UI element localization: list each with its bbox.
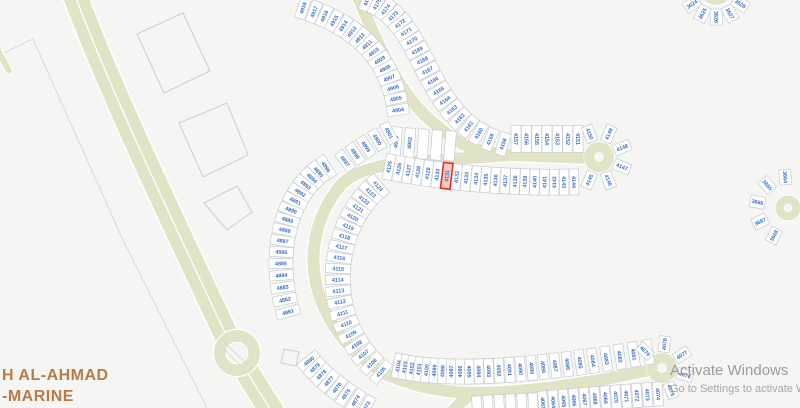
svg-text:4153: 4153 xyxy=(553,133,559,145)
svg-text:4094: 4094 xyxy=(475,365,481,377)
parcel-4063[interactable]: 4063 xyxy=(537,391,549,408)
svg-text:4115: 4115 xyxy=(332,266,344,273)
watermark-line2: Go to Settings to activate W xyxy=(670,383,800,395)
parcel-4067[interactable]: 4067 xyxy=(579,387,590,408)
svg-text:4066: 4066 xyxy=(570,394,577,406)
parcel-4089[interactable]: 4089 xyxy=(526,355,538,381)
parcel-4081[interactable]: 4081 xyxy=(627,341,640,367)
svg-text:4093: 4093 xyxy=(485,365,492,377)
parcel-4115[interactable]: 4115 xyxy=(325,263,351,274)
parcel-4152[interactable]: 4152 xyxy=(563,126,573,153)
parcel-4150[interactable]: 4150 xyxy=(581,124,598,144)
parcel-4095[interactable]: 4095 xyxy=(464,359,474,384)
parcel-3666[interactable]: 3666 xyxy=(749,195,766,210)
svg-text:4070: 4070 xyxy=(612,391,619,403)
parcel-layer: 4918491749164915491449134912491149104909… xyxy=(269,0,792,408)
parcel-blank xyxy=(471,396,482,408)
parcel-blank xyxy=(483,395,494,408)
road-label-line1: H AL-AHMAD xyxy=(2,365,109,386)
parcel-4084[interactable]: 4084 xyxy=(587,348,600,374)
parcel-4072[interactable]: 4072 xyxy=(631,383,642,408)
parcel-4146[interactable]: 4146 xyxy=(600,170,617,190)
parcel-blank xyxy=(430,130,443,161)
svg-text:4152: 4152 xyxy=(564,133,570,145)
parcel-4144[interactable]: 4144 xyxy=(569,169,579,195)
svg-text:4114: 4114 xyxy=(332,277,344,283)
parcel-4074[interactable]: 4074 xyxy=(652,382,663,407)
parcel-3665[interactable]: 3665 xyxy=(758,175,777,194)
road-casings xyxy=(0,0,800,408)
svg-text:4068: 4068 xyxy=(591,393,598,405)
svg-text:4136: 4136 xyxy=(493,174,500,186)
svg-text:4884: 4884 xyxy=(275,273,287,280)
svg-text:3664: 3664 xyxy=(781,171,788,183)
parcel-4154[interactable]: 4154 xyxy=(542,126,552,153)
svg-text:4078: 4078 xyxy=(662,338,669,351)
parcel-4136[interactable]: 4136 xyxy=(490,167,501,194)
vacant-parcel xyxy=(179,103,248,177)
svg-text:4155: 4155 xyxy=(533,133,539,145)
roundabout xyxy=(214,330,261,377)
road-label-line2: -MARINE xyxy=(2,386,109,407)
svg-text:4151: 4151 xyxy=(574,133,580,145)
parcel-4886[interactable]: 4886 xyxy=(269,246,294,257)
watermark-line1: Activate Windows xyxy=(670,362,800,379)
parcel-4156[interactable]: 4156 xyxy=(521,126,531,153)
parcel-4113[interactable]: 4113 xyxy=(325,285,351,297)
svg-text:4138: 4138 xyxy=(513,175,520,187)
parcel-4139[interactable]: 4139 xyxy=(520,169,530,195)
parcel-blank xyxy=(517,393,527,408)
parcel-4885[interactable]: 4885 xyxy=(269,258,293,268)
svg-text:4092: 4092 xyxy=(495,364,502,376)
parcel-4068[interactable]: 4068 xyxy=(589,386,600,408)
parcel-4070[interactable]: 4070 xyxy=(610,385,621,408)
parcel-4884[interactable]: 4884 xyxy=(269,269,294,281)
parcel-4064[interactable]: 4064 xyxy=(548,390,560,408)
vacant-parcel-small xyxy=(281,349,299,366)
parcel-4142[interactable]: 4142 xyxy=(549,169,559,195)
parcel-4069[interactable]: 4069 xyxy=(600,386,611,408)
parcel-4066[interactable]: 4066 xyxy=(568,388,579,408)
svg-text:4135: 4135 xyxy=(483,173,490,185)
parcel-3667[interactable]: 3667 xyxy=(751,213,770,230)
svg-text:4065: 4065 xyxy=(559,395,566,407)
parcel-4153[interactable]: 4153 xyxy=(552,126,562,153)
parcel-4138[interactable]: 4138 xyxy=(510,168,521,194)
parcel-4087[interactable]: 4087 xyxy=(549,353,561,379)
svg-text:4137: 4137 xyxy=(503,175,510,187)
svg-text:4142: 4142 xyxy=(552,176,558,188)
svg-text:4157: 4157 xyxy=(512,133,518,145)
svg-text:4071: 4071 xyxy=(622,390,629,402)
parcel-4131[interactable]: 4131 xyxy=(440,162,453,189)
svg-text:4902: 4902 xyxy=(407,137,414,149)
parcel-4093[interactable]: 4093 xyxy=(483,358,494,383)
svg-text:4096: 4096 xyxy=(458,366,464,378)
svg-text:4072: 4072 xyxy=(633,389,640,401)
parcel-3664[interactable]: 3664 xyxy=(779,169,792,185)
svg-text:4140: 4140 xyxy=(532,176,538,188)
parcel-blank xyxy=(494,394,505,408)
parcel-4096[interactable]: 4096 xyxy=(455,359,465,384)
road-label: H AL-AHMAD -MARINE xyxy=(2,365,109,407)
parcel-blank xyxy=(444,131,457,162)
svg-text:4089: 4089 xyxy=(527,362,534,375)
svg-text:4097: 4097 xyxy=(449,365,455,377)
svg-text:4069: 4069 xyxy=(601,392,608,404)
svg-text:4885: 4885 xyxy=(275,261,287,267)
parcel-blank xyxy=(528,393,538,408)
parcel-3668[interactable]: 3668 xyxy=(765,226,783,245)
parcel-3626[interactable]: 3626 xyxy=(710,9,722,25)
parcel-4092[interactable]: 4092 xyxy=(494,358,505,384)
svg-text:4073: 4073 xyxy=(643,389,650,401)
parcel-4073[interactable]: 4073 xyxy=(642,382,653,407)
parcel-4155[interactable]: 4155 xyxy=(532,126,542,153)
cul-de-sac-east xyxy=(584,142,614,172)
parcel-blank xyxy=(505,394,516,408)
parcel-4071[interactable]: 4071 xyxy=(621,384,632,408)
parcel-4145[interactable]: 4145 xyxy=(581,170,598,190)
svg-text:4063: 4063 xyxy=(539,397,546,408)
svg-text:4133: 4133 xyxy=(463,172,470,185)
cul-de-sac-northeast xyxy=(699,0,734,6)
svg-text:4074: 4074 xyxy=(654,388,661,400)
parcel-4151[interactable]: 4151 xyxy=(573,126,583,153)
parcel-4090[interactable]: 4090 xyxy=(515,356,527,382)
parcel-4065[interactable]: 4065 xyxy=(558,389,569,408)
svg-text:4095: 4095 xyxy=(465,365,471,377)
parcel-4141[interactable]: 4141 xyxy=(539,169,549,195)
parcel-4157[interactable]: 4157 xyxy=(511,126,521,153)
parcel-4086[interactable]: 4086 xyxy=(561,351,574,377)
svg-text:4064: 4064 xyxy=(549,396,556,408)
vacant-parcel xyxy=(204,186,252,230)
svg-text:4090: 4090 xyxy=(516,363,523,375)
svg-text:4091: 4091 xyxy=(505,364,512,376)
parcel-4078[interactable]: 4078 xyxy=(658,336,671,353)
svg-text:4088: 4088 xyxy=(539,361,546,374)
svg-text:4139: 4139 xyxy=(522,176,528,188)
svg-text:4143: 4143 xyxy=(560,176,566,188)
parcel-4140[interactable]: 4140 xyxy=(530,169,540,195)
svg-text:3626: 3626 xyxy=(712,11,718,23)
vacant-parcel xyxy=(137,13,210,93)
svg-text:4144: 4144 xyxy=(570,176,576,188)
cul-de-sac-east-edge xyxy=(775,195,800,221)
parcel-4148[interactable]: 4148 xyxy=(612,139,632,156)
parcel-4143[interactable]: 4143 xyxy=(559,169,569,195)
svg-text:4886: 4886 xyxy=(275,249,287,256)
svg-text:4154: 4154 xyxy=(543,133,549,145)
svg-text:4141: 4141 xyxy=(542,176,548,188)
parcel-4114[interactable]: 4114 xyxy=(325,275,350,285)
parcel-4097[interactable]: 4097 xyxy=(446,359,456,384)
parcel-blank xyxy=(417,129,430,160)
parcel-4082[interactable]: 4082 xyxy=(613,344,626,370)
parcel-4149[interactable]: 4149 xyxy=(600,124,617,144)
parcel-4137[interactable]: 4137 xyxy=(500,168,511,194)
parcel-4083[interactable]: 4083 xyxy=(600,346,613,372)
parcel-4147[interactable]: 4147 xyxy=(612,158,632,175)
parcel-4085[interactable]: 4085 xyxy=(574,349,587,375)
parcel-4088[interactable]: 4088 xyxy=(537,354,549,380)
map-canvas[interactable]: 4918491749164915491449134912491149104909… xyxy=(0,0,800,408)
svg-text:4134: 4134 xyxy=(473,173,480,185)
svg-text:4098: 4098 xyxy=(440,365,446,377)
svg-text:4067: 4067 xyxy=(580,393,587,405)
roads xyxy=(0,0,800,408)
activate-windows-watermark: Activate Windows Go to Settings to activ… xyxy=(670,362,800,395)
parcel-4094[interactable]: 4094 xyxy=(474,359,484,384)
svg-text:4156: 4156 xyxy=(522,133,528,145)
parcel-4091[interactable]: 4091 xyxy=(504,357,515,383)
parcel-4883[interactable]: 4883 xyxy=(270,281,295,295)
parcel-4902[interactable]: 4902 xyxy=(403,128,416,159)
